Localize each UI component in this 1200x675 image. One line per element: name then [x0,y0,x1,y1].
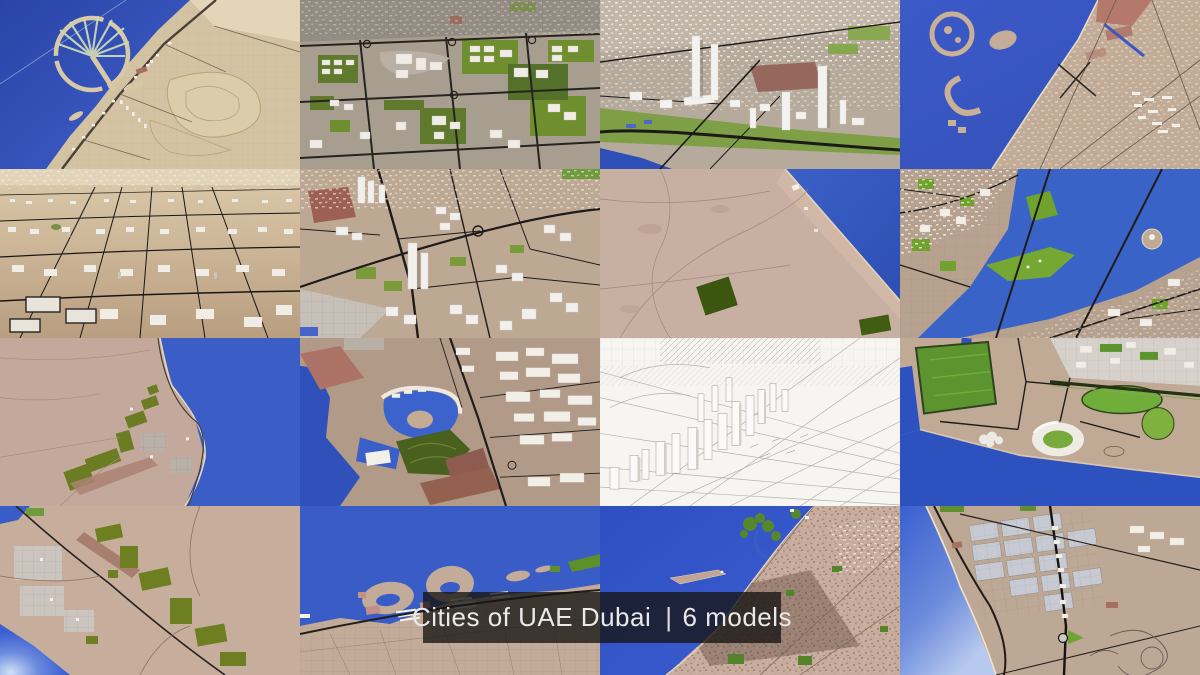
planned-campus-art [300,0,600,169]
tile-suburb-fields-map [0,506,300,675]
tile-satellite-coast-map [600,506,900,675]
tile-wireframe-clay-render [600,338,900,506]
deira-coast-art [900,0,1200,169]
tile-waterfront-islands-map [300,506,600,675]
waterfront-islands-art [300,506,600,675]
tile-sports-city-render [900,338,1200,506]
tile-palm-jumeirah-aerial [0,0,300,169]
caption-separator: | [665,602,672,633]
tile-downtown-roads-render [300,169,600,338]
satellite-coast-art [600,506,900,675]
creek-art [900,169,1200,338]
collage-grid: Cities of UAE Dubai | 6 models [0,0,1200,675]
palm-jumeirah-art [0,0,300,169]
lagoon-resort-art [300,338,600,506]
tile-flat-coast-map [600,169,900,338]
tile-marina-towers-render [600,0,900,169]
caption-bar: Cities of UAE Dubai | 6 models [423,592,781,643]
marina-towers-art [600,0,900,169]
tile-creek-waterway-map [900,169,1200,338]
downtown-art [300,169,600,338]
sports-city-art [900,338,1200,506]
tile-lagoon-resort-render [300,338,600,506]
tile-deira-coast-topdown [900,0,1200,169]
shoreline-plots-art [0,338,300,506]
caption-title: Cities of UAE Dubai [412,602,651,633]
wireframe-art [600,338,900,506]
grid-city-art [900,506,1200,675]
tile-desert-lowrise-perspective [0,169,300,338]
suburb-fields-art [0,506,300,675]
caption-count: 6 models [683,602,793,633]
tile-grid-city-map [900,506,1200,675]
tile-planned-campus-render [300,0,600,169]
desert-lowrise-art [0,169,300,338]
tile-shoreline-plots-map [0,338,300,506]
flat-coast-art [600,169,900,338]
